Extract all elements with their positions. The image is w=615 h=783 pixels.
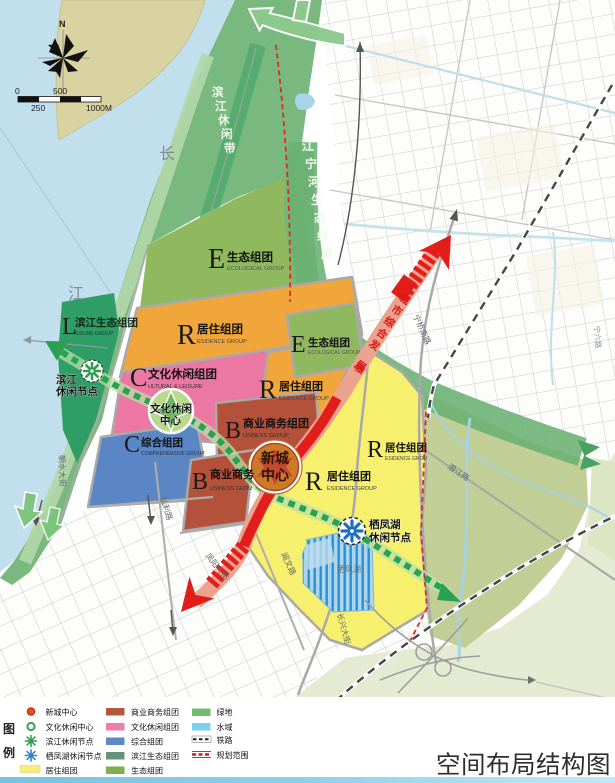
svg-text:态: 态 [314,210,326,225]
svg-text:500: 500 [53,86,67,96]
svg-text:生态组团: 生态组团 [227,250,273,264]
svg-text:空间布局结构图: 空间布局结构图 [436,751,611,779]
svg-text:休: 休 [217,113,230,127]
svg-text:例: 例 [3,745,15,760]
svg-text:居住组团: 居住组团 [46,766,78,776]
svg-text:宁六路: 宁六路 [592,325,604,349]
svg-text:滨: 滨 [212,85,224,99]
svg-text:栖凤湖休闲节点: 栖凤湖休闲节点 [46,751,102,761]
svg-text:居住组团: 居住组团 [327,469,371,483]
svg-text:B: B [225,418,241,444]
svg-text:新城: 新城 [261,450,289,466]
svg-text:EISURE GROUP: EISURE GROUP [75,331,114,337]
svg-text:廊: 廊 [321,246,333,261]
svg-text:休闲节点: 休闲节点 [368,531,411,544]
svg-text:生: 生 [311,192,323,207]
svg-text:R: R [305,467,323,496]
svg-text:江: 江 [215,99,227,113]
svg-text:居住组团: 居住组团 [279,379,323,393]
svg-text:规划范围: 规划范围 [217,750,249,760]
svg-text:ECOLOGICAL GROUP: ECOLOGICAL GROUP [227,266,285,272]
svg-text:ESIDENCE GROU: ESIDENCE GROU [385,456,427,462]
svg-text:滨江休闲节点: 滨江休闲节点 [46,737,94,747]
svg-text:R: R [177,320,196,351]
svg-text:商业商务组团: 商业商务组团 [243,416,309,430]
svg-text:综合组团: 综合组团 [131,737,163,747]
svg-text:E: E [208,244,225,275]
svg-text:铁路: 铁路 [217,735,233,745]
svg-text:USINESS GROU: USINESS GROU [210,486,252,492]
svg-text:B: B [192,469,208,495]
svg-text:C: C [124,432,140,458]
svg-text:滨江生态组团: 滨江生态组团 [131,751,179,761]
svg-text:栖凤湖: 栖凤湖 [369,518,401,531]
svg-text:ESIDENCE GROUP: ESIDENCE GROUP [197,339,247,345]
svg-text:宁: 宁 [305,156,317,171]
svg-text:水域: 水域 [217,722,233,732]
svg-text:朝水大街: 朝水大街 [57,455,68,487]
svg-text:商业商务组团: 商业商务组团 [131,707,179,717]
svg-text:带: 带 [224,141,236,155]
svg-text:图: 图 [3,722,15,736]
svg-text:居住组团: 居住组团 [385,441,427,454]
svg-text:R: R [367,437,383,463]
svg-text:文化休闲: 文化休闲 [149,402,192,415]
svg-text:滨江: 滨江 [56,373,77,386]
svg-text:COMPREHENSIVE GROUP: COMPREHENSIVE GROUP [141,451,205,457]
svg-text:250: 250 [31,103,45,113]
svg-text:0: 0 [15,86,20,96]
svg-text:中心: 中心 [160,414,181,427]
svg-text:绿地: 绿地 [217,707,233,717]
svg-text:栖凤湖: 栖凤湖 [337,564,361,574]
svg-text:E: E [291,332,306,358]
svg-text:综合组团: 综合组团 [141,436,183,449]
svg-text:生态组团: 生态组团 [308,336,350,349]
svg-text:1000M: 1000M [86,103,112,113]
svg-text:文化休闲中心: 文化休闲中心 [46,722,94,732]
svg-text:商业商务: 商业商务 [210,467,255,481]
svg-text:生态组团: 生态组团 [131,766,163,776]
svg-text:ULTURAL & LEISURE: ULTURAL & LEISURE [148,384,203,390]
svg-text:N: N [59,19,66,29]
svg-text:新城中心: 新城中心 [46,707,78,717]
svg-text:休闲节点: 休闲节点 [55,385,98,398]
svg-text:ESIDENCE GROUP: ESIDENCE GROUP [327,486,377,492]
svg-text:文化休闲组团: 文化休闲组团 [131,722,179,732]
svg-text:ECOLOGICAL GROUP: ECOLOGICAL GROUP [308,350,361,356]
svg-text:ESIDENCE GROUP: ESIDENCE GROUP [279,396,329,402]
svg-text:R: R [259,375,277,404]
svg-text:绿: 绿 [317,228,330,243]
svg-text:USINESS GROUP: USINESS GROUP [243,433,289,439]
svg-text:河: 河 [307,174,320,189]
svg-text:江: 江 [302,138,314,153]
svg-text:闲: 闲 [221,127,233,141]
svg-text:中心: 中心 [261,467,289,483]
svg-text:文化休闲组团: 文化休闲组团 [148,367,217,381]
svg-text:江: 江 [68,285,84,303]
svg-text:长: 长 [159,145,175,163]
svg-text:C: C [130,363,147,392]
svg-text:滨江生态组团: 滨江生态组团 [75,316,138,329]
svg-text:居住组团: 居住组团 [197,322,243,336]
